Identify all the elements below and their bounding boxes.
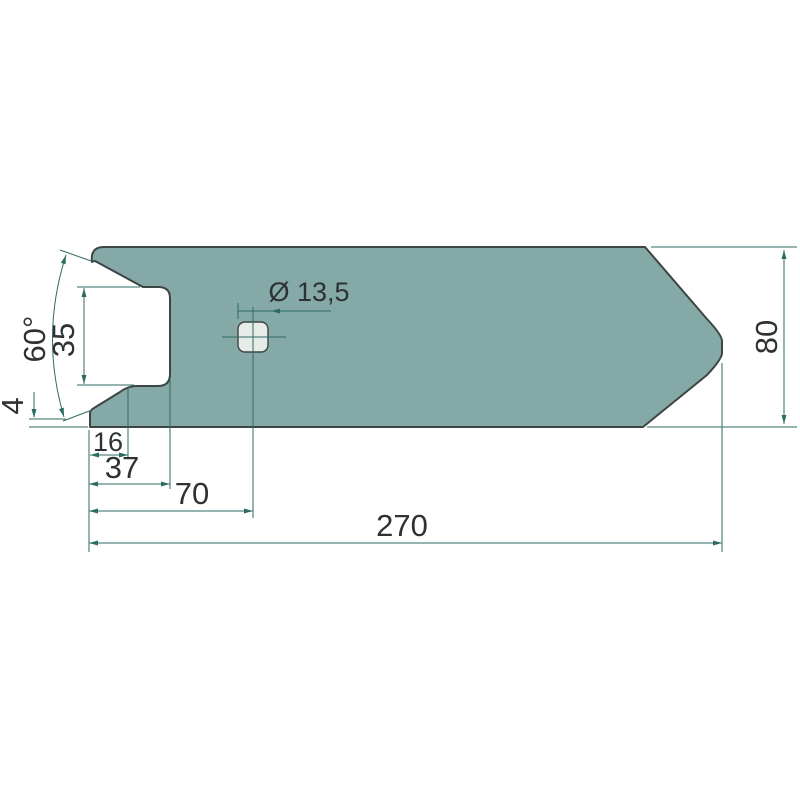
dim-label-70: 70 xyxy=(175,476,209,511)
technical-drawing-canvas: 16 37 70 270 80 35 60° 4 Ø 13,5 xyxy=(0,0,800,800)
arrow-270-left xyxy=(89,541,98,546)
blade-part-outline xyxy=(90,247,722,427)
arrow-270-right xyxy=(713,541,722,546)
dim-label-diameter: Ø 13,5 xyxy=(268,277,349,307)
dim-label-270: 270 xyxy=(376,508,428,543)
arrow-70-right xyxy=(244,509,253,514)
dim-label-4: 4 xyxy=(0,397,30,414)
arrow-35-bottom xyxy=(82,375,87,384)
arc-arrow-top xyxy=(61,254,69,264)
dim-label-60deg: 60° xyxy=(17,316,52,363)
arrow-35-top xyxy=(82,288,87,297)
dim-label-37: 37 xyxy=(105,450,139,485)
arrow-70-left xyxy=(89,509,98,514)
dim-label-80: 80 xyxy=(749,320,784,354)
arc-arrow-bottom xyxy=(59,408,66,418)
blade-drawing-svg: 16 37 70 270 80 35 60° 4 Ø 13,5 xyxy=(0,0,800,800)
arrow-4-down xyxy=(32,409,37,418)
arrow-37-right xyxy=(161,482,170,487)
arrow-80-bottom xyxy=(782,415,787,424)
arrow-80-top xyxy=(782,250,787,259)
extension-bottom-chamfer xyxy=(63,410,92,421)
arrow-37-left xyxy=(89,482,98,487)
